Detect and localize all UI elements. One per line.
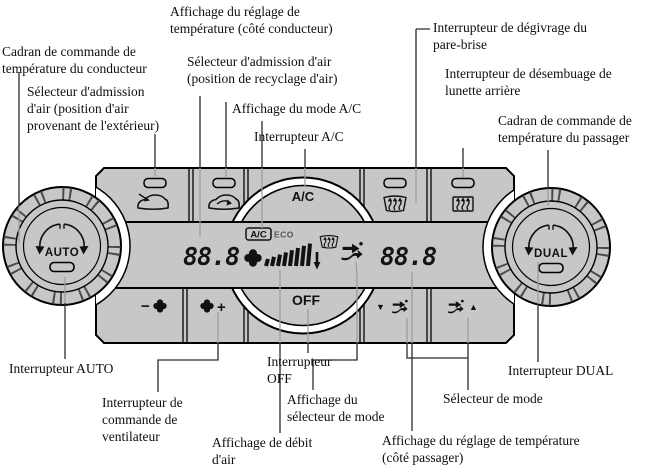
- up-triangle: ▲: [469, 302, 478, 312]
- label-dual-switch: Interrupteur DUAL: [508, 362, 613, 379]
- label-off-switch: Interrupteur OFF: [267, 353, 331, 387]
- down-triangle: ▼: [376, 302, 385, 312]
- dual-knob-label: DUAL: [534, 248, 568, 260]
- label-fan-control-switch: Interrupteur de commande de ventilateur: [102, 394, 183, 445]
- label-airflow-display: Affichage de débit d'air: [212, 434, 312, 468]
- driver-temp-knob: AUTO: [3, 187, 121, 305]
- label-fresh-air-selector: Sélecteur d'admission d'air (position d'…: [27, 83, 159, 134]
- label-recirculate-selector: Sélecteur d'admission d'air (position de…: [187, 53, 338, 87]
- label-ac-mode-display: Affichage du mode A/C: [232, 100, 361, 117]
- passenger-temp-knob: DUAL: [492, 188, 610, 306]
- eco-indicator-label: ECO: [274, 230, 294, 240]
- label-mode-selector: Sélecteur de mode: [443, 390, 543, 407]
- ac-button: A/C: [292, 189, 315, 204]
- climate-control-diagram: 88.8 88.8 A/C ECO AUTO DUAL: [0, 0, 672, 476]
- auto-knob-label: AUTO: [45, 247, 79, 259]
- minus-sign: −: [141, 298, 150, 315]
- label-passenger-temp-dial: Cadran de commande de température du pas…: [498, 112, 632, 146]
- passenger-temp-display: 88.8: [380, 242, 436, 271]
- label-passenger-temp-display: Affichage du réglage de température (côt…: [382, 432, 580, 466]
- label-mode-selector-display: Affichage du sélecteur de mode: [287, 391, 384, 425]
- ac-indicator-label: A/C: [250, 230, 267, 241]
- label-auto-switch: Interrupteur AUTO: [9, 360, 113, 377]
- label-driver-temp-display: Affichage du réglage de température (côt…: [170, 3, 333, 37]
- label-ac-switch: Interrupteur A/C: [254, 128, 344, 145]
- off-button: OFF: [292, 292, 320, 308]
- label-rear-defogger: Interrupteur de désembuage de lunette ar…: [445, 65, 612, 99]
- label-windshield-defrost: Interrupteur de dégivrage du pare-brise: [433, 19, 587, 53]
- driver-temp-display: 88.8: [183, 242, 239, 271]
- label-driver-temp-dial: Cadran de commande de température du con…: [2, 43, 147, 77]
